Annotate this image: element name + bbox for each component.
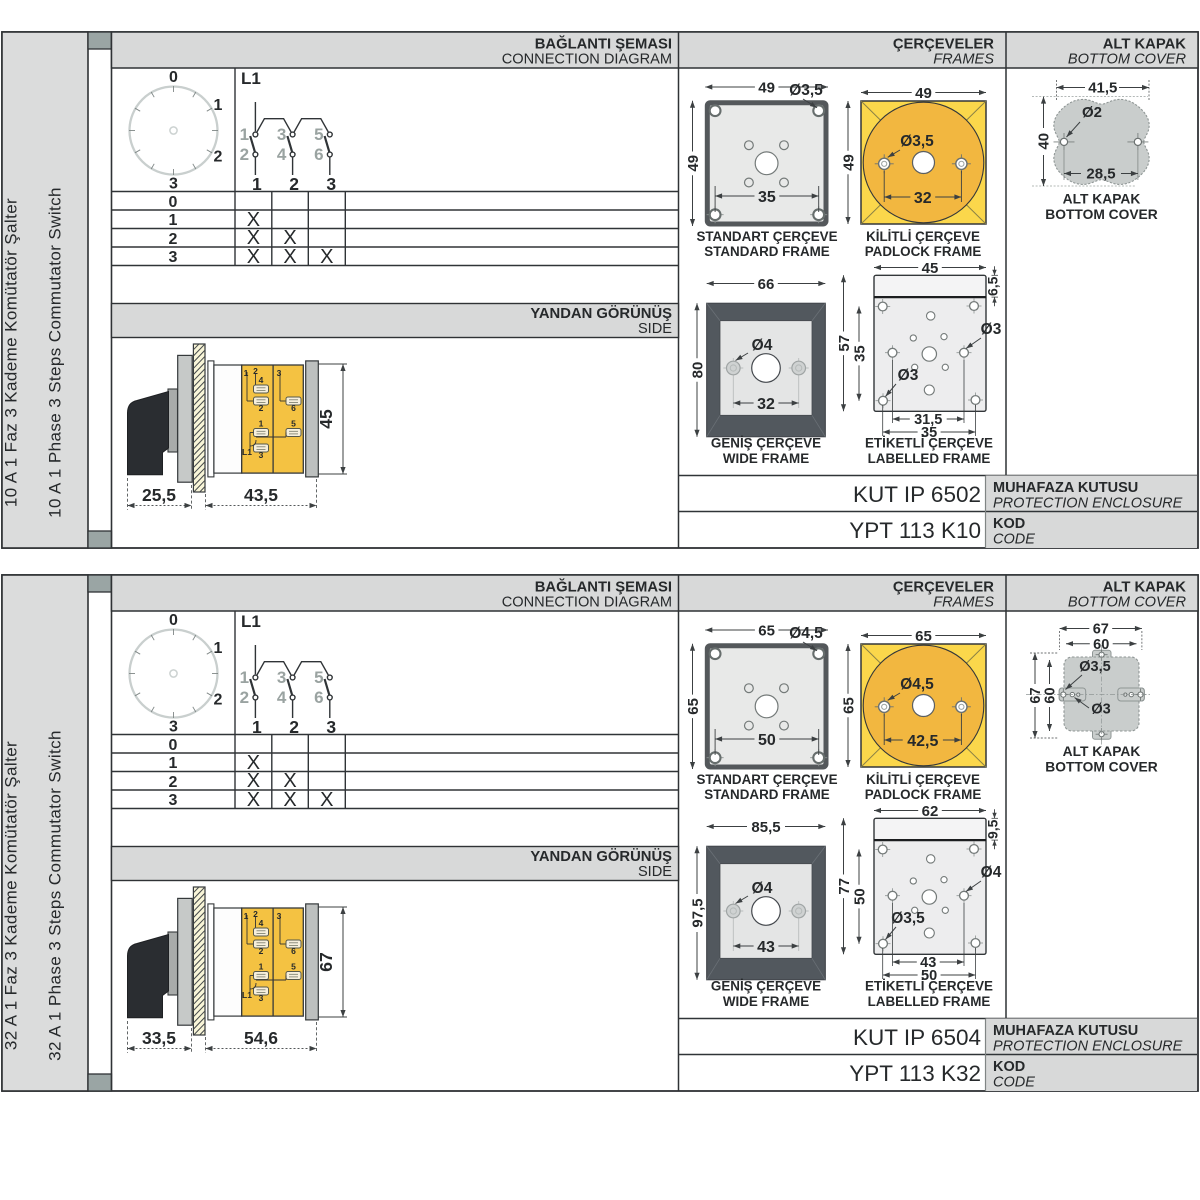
svg-text:KOD: KOD xyxy=(993,1059,1025,1075)
svg-text:1: 1 xyxy=(240,668,249,687)
svg-text:3: 3 xyxy=(277,125,286,144)
svg-text:L1: L1 xyxy=(242,990,252,1000)
svg-text:Ø4,5: Ø4,5 xyxy=(900,676,934,693)
svg-text:KOD: KOD xyxy=(993,516,1025,532)
svg-text:65: 65 xyxy=(915,628,932,645)
svg-text:2: 2 xyxy=(214,149,223,166)
svg-text:2: 2 xyxy=(240,145,249,164)
svg-text:6: 6 xyxy=(291,403,296,413)
svg-text:KİLİTLİ ÇERÇEVE: KİLİTLİ ÇERÇEVE xyxy=(866,229,980,244)
svg-text:60: 60 xyxy=(1043,687,1059,703)
svg-text:L1: L1 xyxy=(241,612,261,631)
svg-text:1: 1 xyxy=(244,911,249,921)
svg-text:X: X xyxy=(283,789,296,811)
svg-text:25,5: 25,5 xyxy=(142,485,176,505)
svg-text:L1: L1 xyxy=(241,69,261,88)
svg-text:62: 62 xyxy=(922,803,939,820)
svg-text:ÇERÇEVELER: ÇERÇEVELER xyxy=(893,580,994,596)
svg-text:28,5: 28,5 xyxy=(1086,166,1115,183)
svg-text:65: 65 xyxy=(758,622,775,639)
svg-text:ETİKETLİ ÇERÇEVE: ETİKETLİ ÇERÇEVE xyxy=(865,979,993,994)
svg-text:33,5: 33,5 xyxy=(142,1028,176,1048)
svg-text:LABELLED FRAME: LABELLED FRAME xyxy=(868,994,991,1009)
svg-text:65: 65 xyxy=(840,697,857,714)
svg-text:L1: L1 xyxy=(242,447,252,457)
svg-text:BOTTOM COVER: BOTTOM COVER xyxy=(1068,595,1187,611)
svg-text:49: 49 xyxy=(758,79,775,96)
svg-text:85,5: 85,5 xyxy=(751,819,780,836)
svg-text:Ø3: Ø3 xyxy=(898,367,919,384)
svg-text:77: 77 xyxy=(836,878,853,895)
svg-text:X: X xyxy=(247,789,260,811)
svg-text:FRAMES: FRAMES xyxy=(933,595,994,611)
svg-text:X: X xyxy=(247,246,260,268)
svg-text:ALT KAPAK: ALT KAPAK xyxy=(1063,192,1141,207)
svg-text:Ø4,5: Ø4,5 xyxy=(789,625,823,642)
svg-text:STANDARD FRAME: STANDARD FRAME xyxy=(704,787,830,802)
svg-text:WIDE FRAME: WIDE FRAME xyxy=(723,451,809,466)
svg-text:2: 2 xyxy=(214,692,223,709)
svg-text:Ø4: Ø4 xyxy=(752,880,773,897)
svg-text:3: 3 xyxy=(259,450,264,460)
svg-text:1: 1 xyxy=(259,962,264,972)
svg-text:CONNECTION DIAGRAM: CONNECTION DIAGRAM xyxy=(502,52,672,68)
svg-text:45: 45 xyxy=(316,409,336,429)
svg-text:3: 3 xyxy=(277,911,282,921)
svg-text:PROTECTION ENCLOSURE: PROTECTION ENCLOSURE xyxy=(993,1039,1183,1055)
svg-text:3: 3 xyxy=(169,176,178,193)
svg-text:41,5: 41,5 xyxy=(1088,80,1117,97)
svg-text:60: 60 xyxy=(1093,637,1109,653)
svg-text:2: 2 xyxy=(169,774,178,791)
svg-text:3: 3 xyxy=(259,993,264,1003)
svg-text:43,5: 43,5 xyxy=(244,485,278,505)
svg-text:PADLOCK FRAME: PADLOCK FRAME xyxy=(865,787,982,802)
svg-text:Ø4: Ø4 xyxy=(752,337,773,354)
svg-text:BAĞLANTI ŞEMASI: BAĞLANTI ŞEMASI xyxy=(535,35,672,53)
svg-text:GENİŞ ÇERÇEVE: GENİŞ ÇERÇEVE xyxy=(711,436,821,451)
svg-text:PROTECTION ENCLOSURE: PROTECTION ENCLOSURE xyxy=(993,496,1183,512)
svg-text:X: X xyxy=(283,246,296,268)
svg-text:BAĞLANTI ŞEMASI: BAĞLANTI ŞEMASI xyxy=(535,578,672,596)
svg-text:35: 35 xyxy=(758,189,776,206)
svg-text:KUT IP 6502: KUT IP 6502 xyxy=(853,482,981,507)
svg-text:42,5: 42,5 xyxy=(907,733,938,750)
svg-text:BOTTOM COVER: BOTTOM COVER xyxy=(1045,207,1157,222)
svg-text:4: 4 xyxy=(259,375,264,385)
svg-text:0: 0 xyxy=(169,194,178,211)
svg-text:5: 5 xyxy=(291,419,296,429)
svg-text:35: 35 xyxy=(851,345,868,362)
svg-text:1: 1 xyxy=(169,212,178,229)
svg-text:MUHAFAZA KUTUSU: MUHAFAZA KUTUSU xyxy=(993,480,1138,496)
svg-text:1: 1 xyxy=(169,755,178,772)
svg-text:97,5: 97,5 xyxy=(689,898,706,927)
svg-text:Ø3: Ø3 xyxy=(1091,702,1110,718)
svg-text:Ø2: Ø2 xyxy=(1082,104,1102,121)
svg-text:32: 32 xyxy=(757,396,775,413)
svg-text:4: 4 xyxy=(277,688,287,707)
svg-text:STANDARD FRAME: STANDARD FRAME xyxy=(704,244,830,259)
svg-text:0: 0 xyxy=(169,69,178,86)
svg-text:YPT 113 K32: YPT 113 K32 xyxy=(849,1061,981,1086)
svg-text:Ø3: Ø3 xyxy=(981,321,1002,338)
svg-text:YANDAN GÖRÜNÜŞ: YANDAN GÖRÜNÜŞ xyxy=(530,305,672,322)
svg-text:49: 49 xyxy=(915,85,932,102)
svg-text:32 A 1 Phase 3 Steps Commutato: 32 A 1 Phase 3 Steps Commutator Switch xyxy=(46,730,65,1061)
svg-text:ÇERÇEVELER: ÇERÇEVELER xyxy=(893,37,994,53)
svg-text:STANDART ÇERÇEVE: STANDART ÇERÇEVE xyxy=(696,229,837,244)
svg-text:2: 2 xyxy=(259,946,264,956)
svg-text:10 A 1 Phase 3 Steps Commutato: 10 A 1 Phase 3 Steps Commutator Switch xyxy=(46,187,65,518)
svg-text:ALT KAPAK: ALT KAPAK xyxy=(1103,580,1187,596)
svg-text:40: 40 xyxy=(1036,133,1053,150)
svg-text:GENİŞ ÇERÇEVE: GENİŞ ÇERÇEVE xyxy=(711,979,821,994)
svg-text:PADLOCK FRAME: PADLOCK FRAME xyxy=(865,244,982,259)
svg-text:SIDE: SIDE xyxy=(638,321,672,337)
svg-text:6,5: 6,5 xyxy=(985,276,1001,296)
svg-text:ALT KAPAK: ALT KAPAK xyxy=(1063,744,1141,759)
svg-text:BOTTOM COVER: BOTTOM COVER xyxy=(1068,52,1187,68)
svg-text:5: 5 xyxy=(314,668,323,687)
svg-text:2: 2 xyxy=(259,403,264,413)
svg-text:4: 4 xyxy=(277,145,287,164)
svg-text:6: 6 xyxy=(291,946,296,956)
svg-text:6: 6 xyxy=(314,145,323,164)
svg-text:CONNECTION DIAGRAM: CONNECTION DIAGRAM xyxy=(502,595,672,611)
svg-text:49: 49 xyxy=(840,154,857,171)
svg-text:57: 57 xyxy=(836,335,853,352)
svg-text:54,6: 54,6 xyxy=(244,1028,278,1048)
svg-text:CODE: CODE xyxy=(993,1075,1035,1091)
svg-text:5: 5 xyxy=(314,125,323,144)
svg-text:1: 1 xyxy=(214,97,223,114)
svg-text:1: 1 xyxy=(240,125,249,144)
svg-text:65: 65 xyxy=(685,698,702,715)
svg-text:KİLİTLİ ÇERÇEVE: KİLİTLİ ÇERÇEVE xyxy=(866,772,980,787)
svg-text:1: 1 xyxy=(244,368,249,378)
svg-text:43: 43 xyxy=(757,939,775,956)
svg-text:ALT KAPAK: ALT KAPAK xyxy=(1103,37,1187,53)
svg-text:Ø3,5: Ø3,5 xyxy=(891,910,925,927)
svg-text:KUT IP 6504: KUT IP 6504 xyxy=(853,1025,981,1050)
svg-text:6: 6 xyxy=(314,688,323,707)
svg-text:3: 3 xyxy=(169,792,178,809)
svg-text:Ø3,5: Ø3,5 xyxy=(1079,659,1110,675)
svg-text:LABELLED FRAME: LABELLED FRAME xyxy=(868,451,991,466)
svg-text:0: 0 xyxy=(169,737,178,754)
svg-text:45: 45 xyxy=(922,260,939,277)
svg-text:2: 2 xyxy=(240,688,249,707)
svg-text:1: 1 xyxy=(259,419,264,429)
svg-text:10 A 1 Faz 3 Kademe Komütatör: 10 A 1 Faz 3 Kademe Komütatör Şalter xyxy=(2,198,21,507)
svg-text:50: 50 xyxy=(758,732,776,749)
svg-text:X: X xyxy=(320,789,333,811)
svg-text:80: 80 xyxy=(689,362,706,379)
svg-text:Ø3,5: Ø3,5 xyxy=(789,82,823,99)
svg-text:32 A 1 Faz 3 Kademe Komütatör: 32 A 1 Faz 3 Kademe Komütatör Şalter xyxy=(2,741,21,1050)
svg-text:YANDAN GÖRÜNÜŞ: YANDAN GÖRÜNÜŞ xyxy=(530,848,672,865)
svg-text:BOTTOM COVER: BOTTOM COVER xyxy=(1045,760,1157,775)
svg-text:2: 2 xyxy=(253,909,258,919)
svg-text:67: 67 xyxy=(1093,622,1109,638)
svg-text:9,5: 9,5 xyxy=(985,819,1001,839)
svg-text:WIDE FRAME: WIDE FRAME xyxy=(723,994,809,1009)
svg-text:2: 2 xyxy=(253,366,258,376)
svg-text:3: 3 xyxy=(169,719,178,736)
svg-text:1: 1 xyxy=(214,640,223,657)
svg-text:49: 49 xyxy=(685,155,702,172)
svg-text:32: 32 xyxy=(914,190,932,207)
svg-text:2: 2 xyxy=(169,231,178,248)
svg-text:STANDART ÇERÇEVE: STANDART ÇERÇEVE xyxy=(696,772,837,787)
svg-text:4: 4 xyxy=(259,918,264,928)
svg-text:66: 66 xyxy=(758,276,775,293)
svg-text:50: 50 xyxy=(851,888,868,905)
svg-text:Ø4: Ø4 xyxy=(981,864,1002,881)
svg-text:0: 0 xyxy=(169,612,178,629)
svg-text:67: 67 xyxy=(316,952,336,971)
svg-text:ETİKETLİ ÇERÇEVE: ETİKETLİ ÇERÇEVE xyxy=(865,436,993,451)
svg-text:CODE: CODE xyxy=(993,532,1035,548)
svg-text:3: 3 xyxy=(277,668,286,687)
svg-text:X: X xyxy=(320,246,333,268)
svg-text:5: 5 xyxy=(291,962,296,972)
svg-text:3: 3 xyxy=(277,368,282,378)
svg-text:SIDE: SIDE xyxy=(638,864,672,880)
svg-text:Ø3,5: Ø3,5 xyxy=(900,133,934,150)
svg-text:YPT 113 K10: YPT 113 K10 xyxy=(849,518,981,543)
svg-text:FRAMES: FRAMES xyxy=(933,52,994,68)
svg-text:MUHAFAZA KUTUSU: MUHAFAZA KUTUSU xyxy=(993,1023,1138,1039)
svg-text:3: 3 xyxy=(169,249,178,266)
